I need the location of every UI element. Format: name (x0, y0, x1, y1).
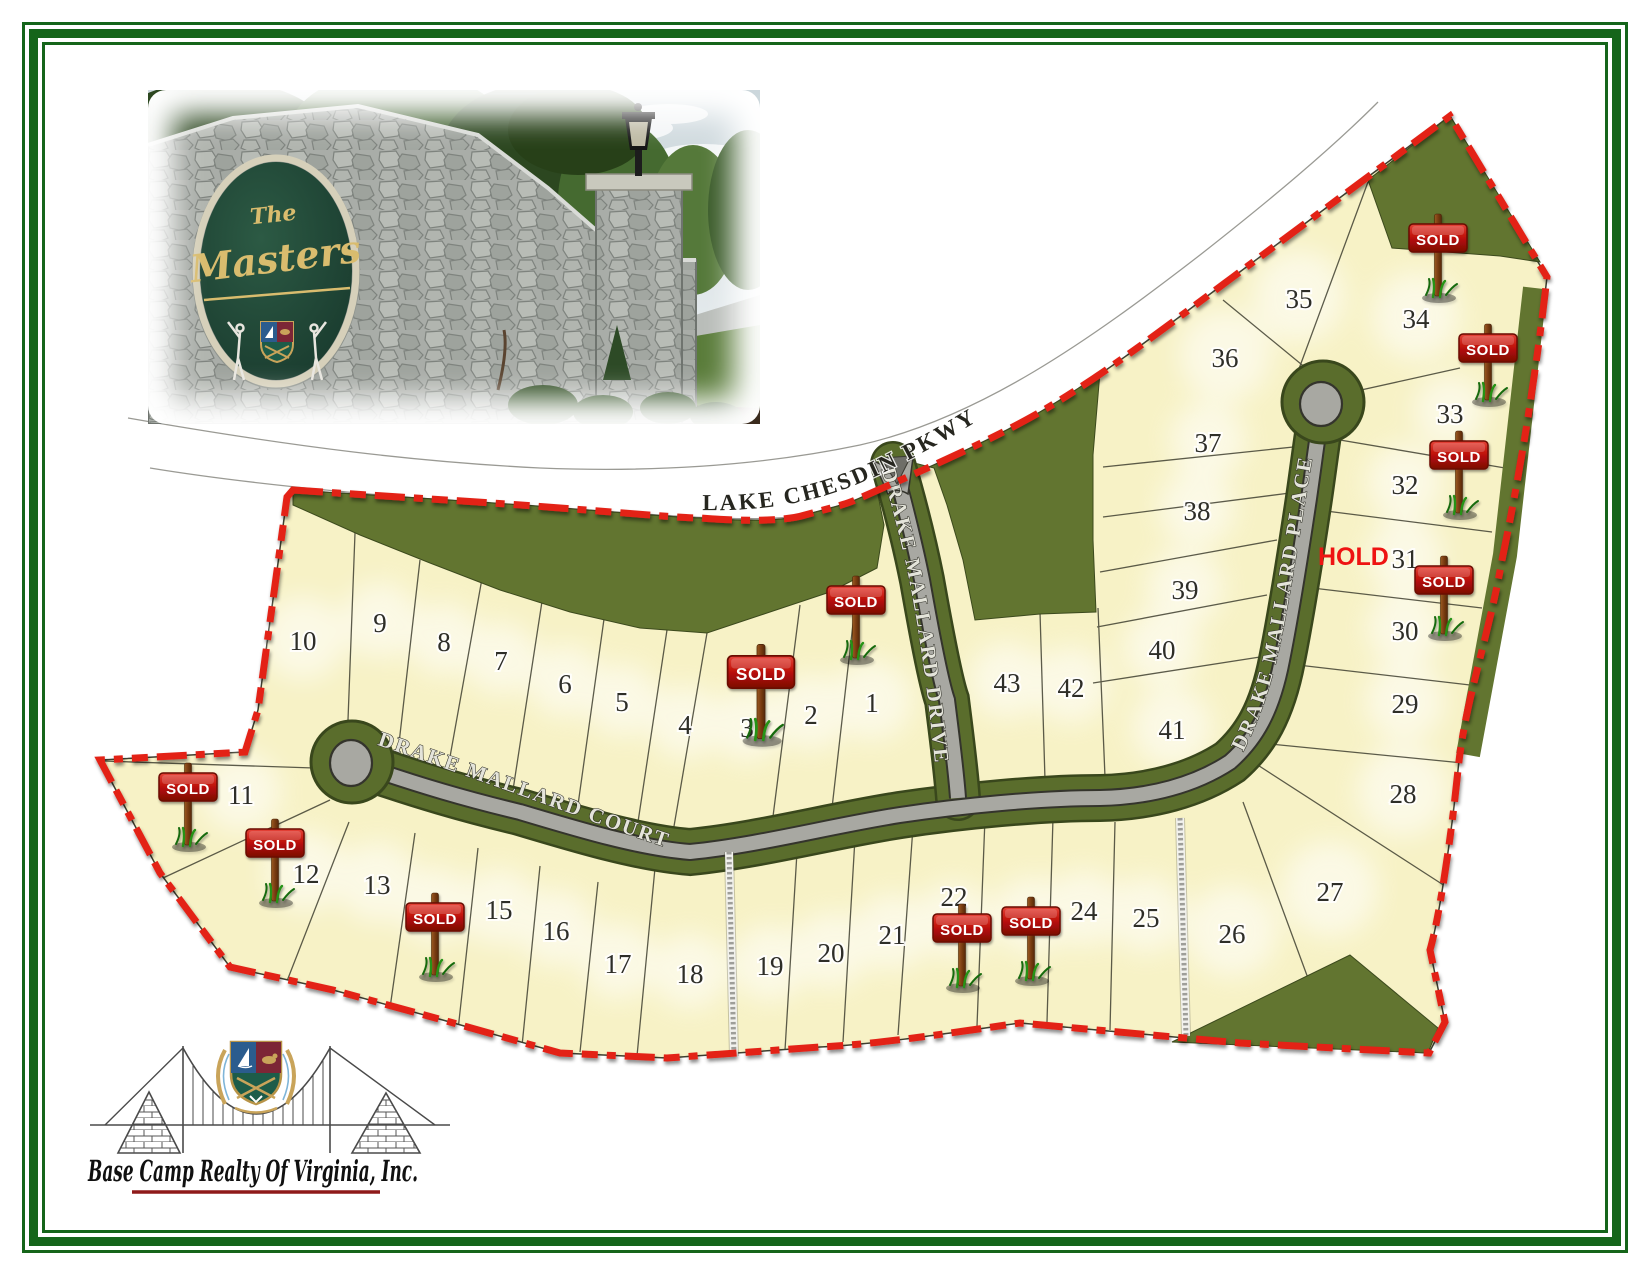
lot-number: 7 (494, 646, 508, 676)
plat-page: { "photo": { "entrance_sign_top": "The",… (0, 0, 1650, 1275)
lot-number: 27 (1317, 877, 1344, 907)
svg-text:SOLD: SOLD (253, 837, 297, 854)
entrance-photo: The Masters (148, 90, 760, 424)
lot-number: 17 (605, 949, 632, 979)
lot-number: 24 (1071, 896, 1099, 926)
company-name: Base Camp Realty Of Virginia, Inc. (87, 1154, 418, 1188)
lot-number: 42 (1058, 673, 1085, 703)
svg-text:SOLD: SOLD (166, 781, 210, 798)
lot-number: 8 (437, 627, 451, 657)
lot-number: 10 (290, 626, 317, 656)
lot-number: 4 (678, 710, 692, 740)
lot-number: 29 (1392, 689, 1419, 719)
lot-number: 6 (558, 669, 572, 699)
lot-number: 28 (1390, 779, 1417, 809)
lot-number: 35 (1286, 284, 1313, 314)
court-cul-de-sac (311, 721, 393, 803)
lot-number: 21 (879, 920, 906, 950)
hold-status-label: HOLD (1318, 543, 1389, 571)
realty-logo-art: Base Camp Realty Of Virginia, Inc. (85, 1010, 505, 1210)
svg-text:SOLD: SOLD (736, 664, 786, 684)
lot-number: 18 (677, 959, 704, 989)
svg-text:SOLD: SOLD (1416, 232, 1460, 249)
realty-logo: Base Camp Realty Of Virginia, Inc. (85, 1010, 505, 1210)
lot-number: 37 (1195, 428, 1222, 458)
lot-number: 16 (543, 916, 570, 946)
svg-text:SOLD: SOLD (1437, 449, 1481, 466)
lot-number: 25 (1133, 903, 1160, 933)
lot-number: 12 (293, 859, 320, 889)
lot-number: 13 (364, 870, 391, 900)
lot-number: 38 (1184, 496, 1211, 526)
lot-number: 19 (757, 951, 784, 981)
svg-text:SOLD: SOLD (1009, 915, 1053, 932)
lot-number: 1 (865, 688, 879, 718)
place-cul-de-sac (1282, 361, 1364, 443)
lot-number: 41 (1159, 715, 1186, 745)
lot-number: 9 (373, 608, 387, 638)
svg-text:SOLD: SOLD (413, 911, 457, 928)
crest-icon (218, 1042, 294, 1113)
lot-number: 33 (1437, 399, 1464, 429)
svg-text:SOLD: SOLD (834, 594, 878, 611)
lot-number: 39 (1172, 575, 1199, 605)
lot-number: 15 (486, 895, 513, 925)
lot-number: 26 (1219, 919, 1246, 949)
lot-number: 2 (804, 700, 818, 730)
lot-number: 30 (1392, 616, 1419, 646)
svg-text:SOLD: SOLD (1466, 342, 1510, 359)
svg-text:SOLD: SOLD (1422, 574, 1466, 591)
lot-number: 40 (1149, 635, 1176, 665)
lot-number: 32 (1392, 470, 1419, 500)
lot-number: 34 (1403, 304, 1431, 334)
lot-number: 20 (818, 938, 845, 968)
photo-feathered-edge (148, 90, 760, 424)
lot-number: 11 (228, 780, 254, 810)
lot-number: 36 (1212, 343, 1239, 373)
lot-number: 43 (994, 668, 1021, 698)
svg-text:SOLD: SOLD (940, 922, 984, 939)
lot-number: 5 (615, 687, 629, 717)
